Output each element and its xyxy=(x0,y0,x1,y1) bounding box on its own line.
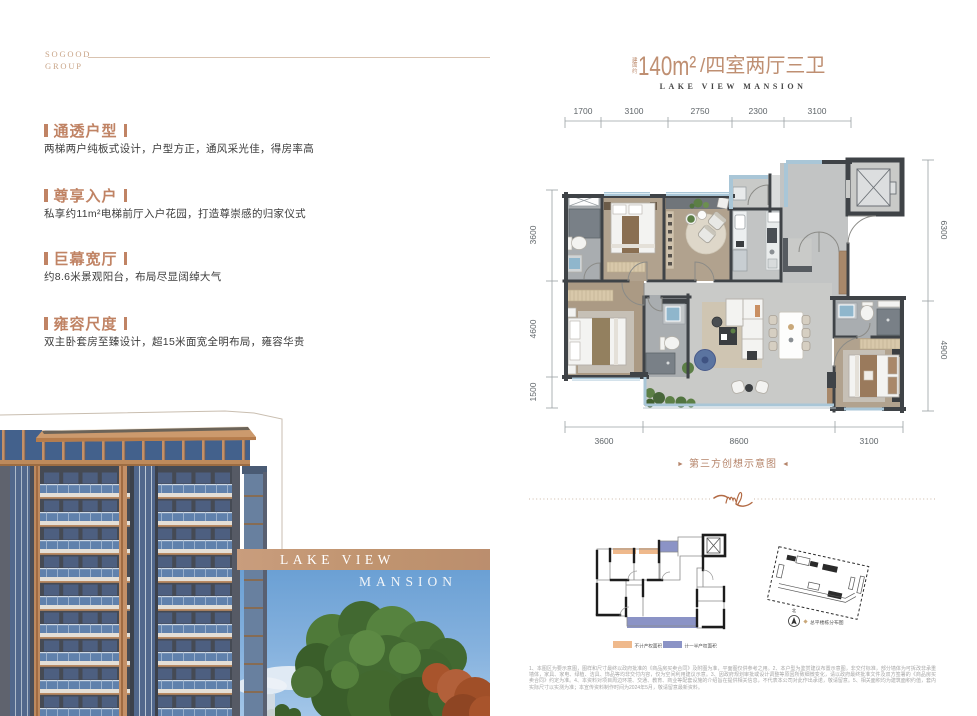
svg-text:3100: 3100 xyxy=(860,436,879,446)
svg-text:3100: 3100 xyxy=(625,106,644,116)
svg-text:2750: 2750 xyxy=(691,106,710,116)
svg-text:3100: 3100 xyxy=(808,106,827,116)
svg-text:3600: 3600 xyxy=(528,225,538,244)
svg-text:3600: 3600 xyxy=(595,436,614,446)
svg-text:8600: 8600 xyxy=(730,436,749,446)
svg-text:北: 北 xyxy=(792,607,797,614)
svg-text:不计产权面积: 不计产权面积 xyxy=(635,643,663,650)
svg-text:4900: 4900 xyxy=(939,341,949,360)
svg-text:◄: ◄ xyxy=(782,461,789,468)
svg-text:►: ► xyxy=(677,461,684,468)
svg-text:4600: 4600 xyxy=(528,319,538,338)
svg-text:2300: 2300 xyxy=(749,106,768,116)
svg-text:6300: 6300 xyxy=(939,221,949,240)
svg-text:计一半产权面积: 计一半产权面积 xyxy=(685,643,718,650)
svg-text:总平楼栋分布图: 总平楼栋分布图 xyxy=(810,619,844,626)
svg-text:1700: 1700 xyxy=(574,106,593,116)
svg-text:1500: 1500 xyxy=(528,382,538,401)
svg-text:第三方创想示意图: 第三方创想示意图 xyxy=(689,457,777,470)
